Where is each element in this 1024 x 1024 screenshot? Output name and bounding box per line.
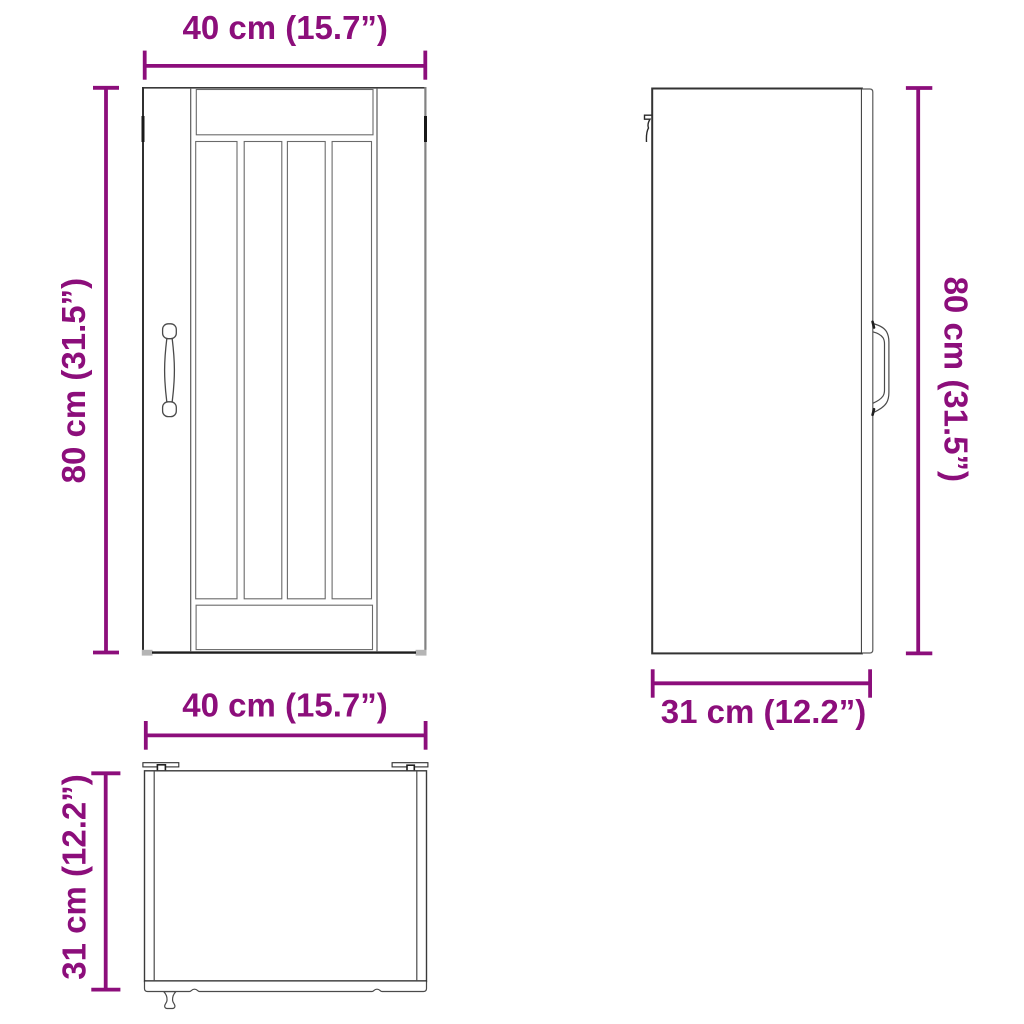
- svg-text:40 cm (15.7”): 40 cm (15.7”): [182, 9, 387, 46]
- svg-text:31 cm (12.2”): 31 cm (12.2”): [661, 693, 866, 730]
- svg-text:40 cm (15.7”): 40 cm (15.7”): [182, 687, 387, 724]
- svg-text:80 cm (31.5”): 80 cm (31.5”): [938, 277, 975, 482]
- svg-text:80 cm (31.5”): 80 cm (31.5”): [55, 278, 92, 483]
- svg-text:31 cm (12.2”): 31 cm (12.2”): [56, 774, 93, 979]
